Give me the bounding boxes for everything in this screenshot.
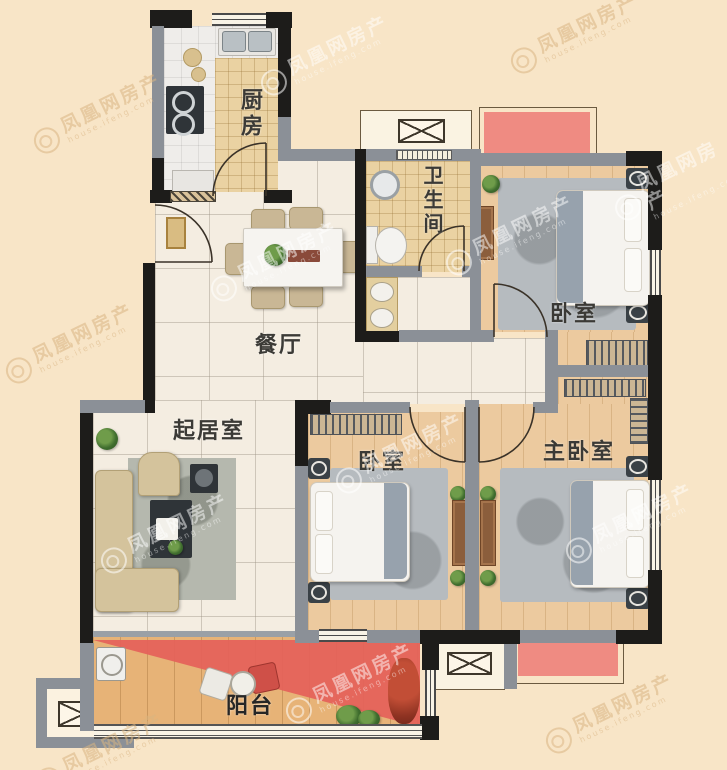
wall xyxy=(399,330,494,342)
pillow xyxy=(315,491,333,531)
balcony-railing-window xyxy=(94,724,422,739)
watermark-logo-icon xyxy=(541,723,576,758)
watermark: 凤凰网房产house.ifeng.com xyxy=(29,70,170,159)
bed-blanket xyxy=(384,483,407,579)
wardrobe-icon xyxy=(310,414,402,435)
tray xyxy=(156,518,178,540)
basin-icon xyxy=(370,308,394,328)
wall xyxy=(520,630,618,643)
nightstand-icon xyxy=(308,582,330,603)
nightstand-icon xyxy=(626,588,650,609)
pillow xyxy=(624,248,642,292)
plate-icon xyxy=(183,48,202,67)
watermark: 凤凰网房产house.ifeng.com xyxy=(1,300,142,389)
kitchen-counter xyxy=(172,170,214,192)
basin-icon xyxy=(370,282,394,302)
washer-drum xyxy=(101,654,123,676)
wall xyxy=(150,190,172,203)
dining-chair xyxy=(251,286,285,309)
wall xyxy=(533,402,558,413)
watermark: 凤凰网房产house.ifeng.com xyxy=(506,0,647,79)
watermark-logo-icon xyxy=(31,763,66,770)
sink-basin xyxy=(248,31,272,52)
watermark-logo-icon xyxy=(506,43,541,78)
window xyxy=(650,250,661,295)
master-bedroom-label: 主卧室 xyxy=(543,434,615,466)
dining-room-label: 餐厅 xyxy=(255,327,303,359)
bedroom-middle-label: 卧室 xyxy=(358,444,406,476)
wall xyxy=(355,331,401,342)
wall xyxy=(420,716,439,740)
toilet-icon xyxy=(375,227,407,264)
window xyxy=(212,13,266,26)
burner xyxy=(172,91,195,114)
wall xyxy=(480,153,628,166)
pillow xyxy=(626,489,644,531)
wall xyxy=(330,402,410,413)
wall xyxy=(278,16,291,117)
wall xyxy=(80,413,93,643)
nightstand-icon xyxy=(308,458,330,479)
wall xyxy=(278,117,291,161)
pillow xyxy=(626,536,644,578)
wall xyxy=(367,630,422,643)
wall xyxy=(545,330,558,406)
kitchen-label: 厨房 xyxy=(233,88,265,140)
burner xyxy=(172,113,195,136)
wall xyxy=(295,400,308,466)
shower-icon xyxy=(370,170,400,200)
window xyxy=(425,670,436,718)
sofa-icon xyxy=(95,568,179,612)
wall xyxy=(366,266,422,277)
window xyxy=(396,150,452,160)
cabinet-icon xyxy=(480,500,496,566)
wall xyxy=(422,630,439,670)
balcony-sliding-door xyxy=(93,631,295,637)
wall xyxy=(465,413,479,632)
plant-icon xyxy=(96,428,118,450)
wall xyxy=(462,266,472,277)
wall xyxy=(648,295,662,480)
sink-basin xyxy=(222,31,246,52)
pillow xyxy=(624,198,642,242)
sliding-door-icon xyxy=(170,191,216,202)
plant-icon xyxy=(264,244,286,266)
wall xyxy=(470,149,481,333)
window xyxy=(650,480,661,570)
wall xyxy=(295,630,319,643)
plate-icon xyxy=(191,67,206,82)
wardrobe-icon xyxy=(564,379,646,397)
wardrobe-icon xyxy=(586,340,648,366)
nightstand-icon xyxy=(626,456,650,477)
plant-icon xyxy=(480,570,496,586)
pillow xyxy=(315,534,333,574)
bathroom-label: 卫生间 xyxy=(418,165,447,237)
wall xyxy=(616,630,662,644)
table-runner xyxy=(288,250,320,262)
watermark-logo-icon xyxy=(1,353,36,388)
wall xyxy=(558,365,648,377)
ac-unit-icon xyxy=(447,652,492,675)
window xyxy=(319,629,367,642)
floor-plan: 厨房 卫生间 卧室 卧室 主卧室 餐厅 起居室 阳台 凤凰网房产house.if… xyxy=(0,0,727,770)
wall xyxy=(80,643,94,731)
red-plant-icon xyxy=(388,658,420,724)
dining-chair xyxy=(289,284,323,307)
armchair-icon xyxy=(138,452,180,496)
bed-blanket xyxy=(571,481,593,585)
flower-bed-top xyxy=(484,112,590,156)
wall xyxy=(291,149,363,161)
wardrobe-icon xyxy=(630,398,648,444)
wall xyxy=(355,149,366,339)
wall xyxy=(264,190,292,203)
wall xyxy=(648,151,662,250)
balcony-label: 阳台 xyxy=(226,688,274,720)
bed-blanket xyxy=(557,191,583,303)
plant-icon xyxy=(450,570,466,586)
ac-unit-icon xyxy=(398,119,445,143)
bedroom-top-label: 卧室 xyxy=(550,296,598,328)
wall xyxy=(504,643,517,689)
plant-icon xyxy=(168,540,183,555)
watermark-logo-icon xyxy=(29,123,64,158)
living-room-label: 起居室 xyxy=(173,413,245,445)
wall xyxy=(295,466,308,632)
doormat xyxy=(166,217,186,249)
wall xyxy=(465,400,479,413)
corridor-floor xyxy=(363,338,545,404)
plant-icon xyxy=(482,175,500,193)
dining-chair xyxy=(289,207,323,230)
wall xyxy=(143,263,155,413)
flower-bed-bottom xyxy=(518,643,618,676)
nightstand-icon xyxy=(626,168,650,189)
tray xyxy=(195,469,213,487)
wall xyxy=(80,400,145,413)
